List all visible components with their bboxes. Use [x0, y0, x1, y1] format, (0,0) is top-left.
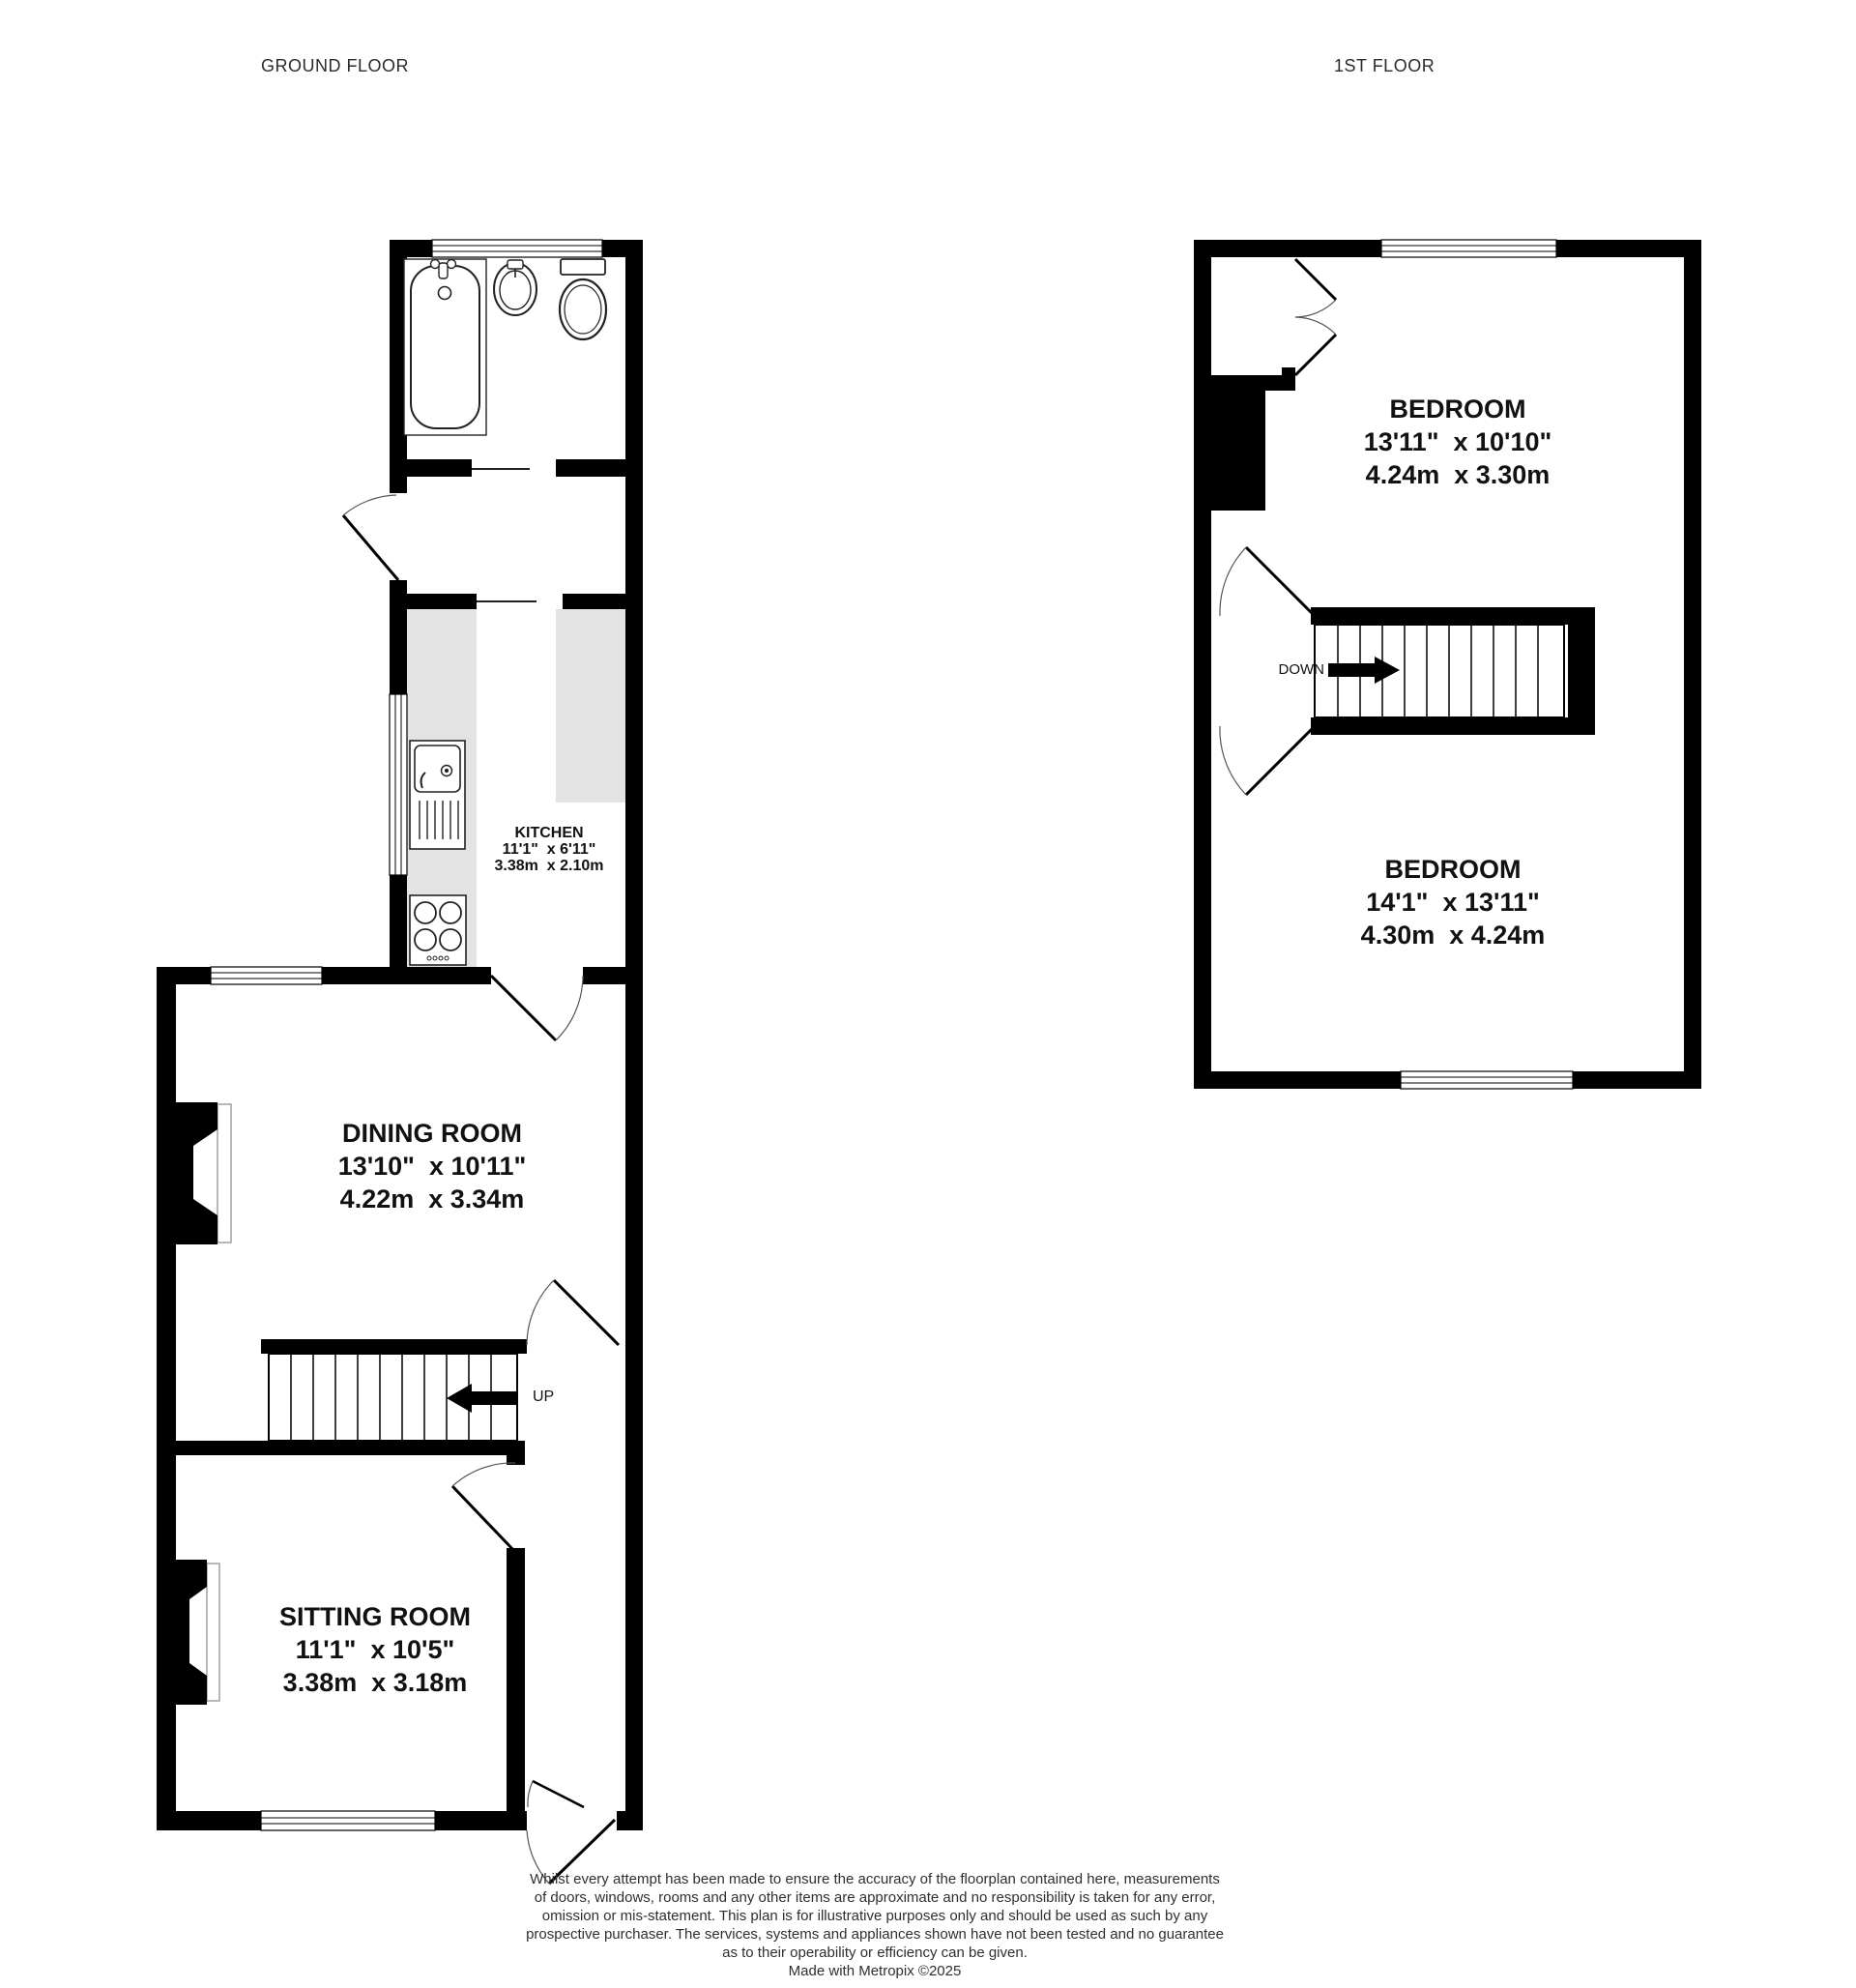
bedroom2-imperial: 14'1" x 13'11"	[1361, 886, 1546, 919]
bedroom2-window	[1401, 1071, 1573, 1089]
bedroom2-label: BEDROOM 14'1" x 13'11" 4.30m x 4.24m	[1361, 853, 1546, 951]
ground-floor-title: GROUND FLOOR	[261, 56, 409, 76]
disclaimer-line-1: Whilst every attempt has been made to en…	[440, 1870, 1310, 1888]
disclaimer-credit: Made with Metropix ©2025	[440, 1962, 1310, 1980]
stairs-down	[1315, 625, 1564, 717]
disclaimer-line-4: prospective purchaser. The services, sys…	[440, 1925, 1310, 1944]
bedroom1-name: BEDROOM	[1364, 393, 1552, 425]
dining-window	[211, 967, 322, 984]
bedroom2-metric: 4.30m x 4.24m	[1361, 919, 1546, 951]
toilet-icon	[560, 259, 606, 339]
ground-walls	[157, 240, 643, 1830]
stairs-up-label: UP	[533, 1389, 554, 1406]
sitting-room-imperial: 11'1" x 10'5"	[279, 1633, 471, 1666]
front-door	[527, 1781, 615, 1884]
sitting-chimney	[176, 1560, 219, 1705]
wardrobe-doors	[1295, 259, 1336, 375]
bedroom1-metric: 4.24m x 3.30m	[1364, 458, 1552, 491]
dining-room-name: DINING ROOM	[338, 1117, 527, 1150]
kitchen-metric: 3.38m x 2.10m	[495, 858, 604, 874]
bedroom1-door	[1220, 547, 1315, 616]
bedroom2-door	[1220, 726, 1315, 795]
dining-room-label: DINING ROOM 13'10" x 10'11" 4.22m x 3.34…	[338, 1117, 527, 1215]
dining-room-imperial: 13'10" x 10'11"	[338, 1150, 527, 1183]
disclaimer: Whilst every attempt has been made to en…	[440, 1870, 1310, 1980]
sitting-room-metric: 3.38m x 3.18m	[279, 1666, 471, 1699]
sitting-room-label: SITTING ROOM 11'1" x 10'5" 3.38m x 3.18m	[279, 1600, 471, 1699]
sitting-room-door	[452, 1463, 515, 1552]
disclaimer-line-5: as to their operability or efficiency ca…	[440, 1944, 1310, 1962]
stairs-down-label: DOWN	[1218, 661, 1324, 678]
bathtub-icon	[404, 259, 486, 435]
sitting-window	[261, 1811, 435, 1830]
bathroom-window	[432, 240, 602, 257]
kitchen-imperial: 11'1" x 6'11"	[495, 841, 604, 858]
dining-room-metric: 4.22m x 3.34m	[338, 1183, 527, 1215]
bedroom2-name: BEDROOM	[1361, 853, 1546, 886]
kitchen-sink-icon	[410, 741, 465, 849]
disclaimer-line-3: omission or mis-statement. This plan is …	[440, 1907, 1310, 1925]
dining-chimney	[176, 1102, 231, 1244]
stairs-up	[269, 1354, 517, 1441]
disclaimer-line-2: of doors, windows, rooms and any other i…	[440, 1888, 1310, 1907]
bedroom1-label: BEDROOM 13'11" x 10'10" 4.24m x 3.30m	[1364, 393, 1552, 491]
back-door	[343, 495, 398, 580]
hall-dining-door	[527, 1280, 619, 1345]
basin-icon	[494, 260, 536, 315]
hob-icon	[410, 895, 466, 965]
kitchen-window	[390, 694, 407, 875]
kitchen-name: KITCHEN	[495, 825, 604, 841]
bedroom1-window	[1381, 240, 1556, 257]
kitchen-label: KITCHEN 11'1" x 6'11" 3.38m x 2.10m	[495, 825, 604, 874]
door-openings	[472, 469, 536, 601]
first-floor-title: 1ST FLOOR	[1334, 56, 1435, 76]
sitting-room-name: SITTING ROOM	[279, 1600, 471, 1633]
bedroom1-imperial: 13'11" x 10'10"	[1364, 425, 1552, 458]
kitchen-dining-door	[491, 976, 583, 1040]
